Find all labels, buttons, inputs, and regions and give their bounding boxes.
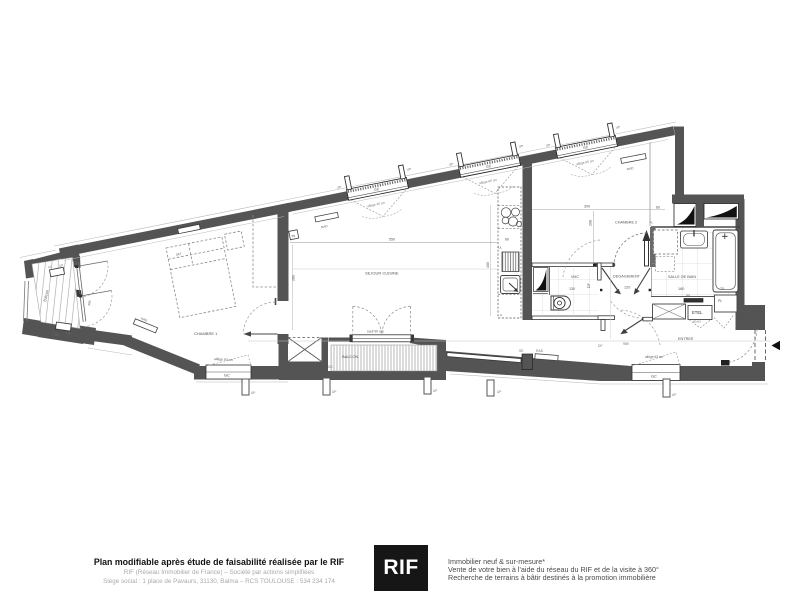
svg-text:UP: UP: [67, 332, 71, 336]
svg-text:60: 60: [505, 238, 509, 242]
svg-text:UP: UP: [518, 144, 523, 149]
svg-text:GC: GC: [328, 365, 333, 369]
svg-text:UP: UP: [251, 391, 255, 395]
svg-text:309: 309: [584, 205, 590, 209]
svg-text:allège 65 cm: allège 65 cm: [576, 159, 595, 167]
svg-text:130: 130: [569, 287, 575, 291]
svg-text:UP: UP: [337, 185, 342, 190]
svg-text:GC: GC: [224, 374, 230, 378]
svg-text:347: 347: [175, 252, 181, 257]
svg-text:allège 45 cm: allège 45 cm: [367, 201, 386, 209]
svg-text:180: 180: [678, 287, 684, 291]
svg-text:ENTREE: ENTREE: [678, 337, 694, 341]
svg-text:PL: PL: [650, 221, 654, 225]
svg-text:DF: DF: [598, 344, 603, 348]
svg-text:PL: PL: [718, 299, 722, 303]
svg-text:RAD: RAD: [626, 166, 634, 171]
svg-text:UP: UP: [449, 162, 454, 167]
svg-text:UP: UP: [672, 393, 676, 397]
svg-text:VMC: VMC: [571, 275, 579, 279]
svg-text:60x60: 60x60: [693, 320, 701, 324]
svg-text:UP: UP: [615, 125, 620, 130]
svg-text:UP: UP: [497, 390, 501, 394]
svg-text:SALLE DE BAIN: SALLE DE BAIN: [668, 275, 696, 279]
svg-text:280: 280: [292, 275, 296, 281]
svg-text:989: 989: [623, 342, 629, 346]
svg-text:UP: UP: [332, 390, 336, 394]
svg-text:allège 63 cm: allège 63 cm: [645, 355, 663, 359]
svg-text:UP: UP: [546, 143, 551, 148]
svg-text:SEJOUR CUISINE: SEJOUR CUISINE: [365, 271, 399, 276]
svg-text:RAD: RAD: [321, 224, 329, 229]
svg-text:CHAMBRE 1: CHAMBRE 1: [194, 331, 218, 336]
svg-text:DEGAGEMENT: DEGAGEMENT: [613, 275, 641, 279]
svg-text:GC: GC: [651, 375, 657, 379]
svg-text:RAD: RAD: [536, 349, 544, 353]
svg-text:SE: SE: [519, 349, 524, 353]
svg-text:allège 65 cm: allège 65 cm: [479, 178, 498, 186]
svg-text:UP: UP: [406, 167, 411, 172]
svg-text:A: A: [500, 313, 502, 317]
svg-text:400: 400: [486, 262, 490, 268]
svg-text:268: 268: [589, 220, 593, 226]
svg-text:UP: UP: [433, 389, 437, 393]
svg-text:ETEL: ETEL: [692, 310, 703, 315]
svg-text:120: 120: [624, 286, 630, 290]
svg-text:allège 63 cm: allège 63 cm: [214, 357, 234, 362]
svg-text:60: 60: [656, 206, 660, 210]
svg-text:UL: UL: [499, 246, 503, 250]
svg-text:70: 70: [720, 287, 724, 291]
svg-text:550: 550: [389, 238, 395, 242]
svg-text:BALCON: BALCON: [342, 354, 359, 359]
svg-text:CHAMBRE 2: CHAMBRE 2: [615, 221, 637, 225]
svg-text:UP: UP: [59, 263, 64, 268]
svg-text:sauf 90 cm: sauf 90 cm: [367, 330, 384, 334]
svg-text:DF: DF: [587, 282, 591, 288]
svg-text:400: 400: [87, 300, 92, 306]
